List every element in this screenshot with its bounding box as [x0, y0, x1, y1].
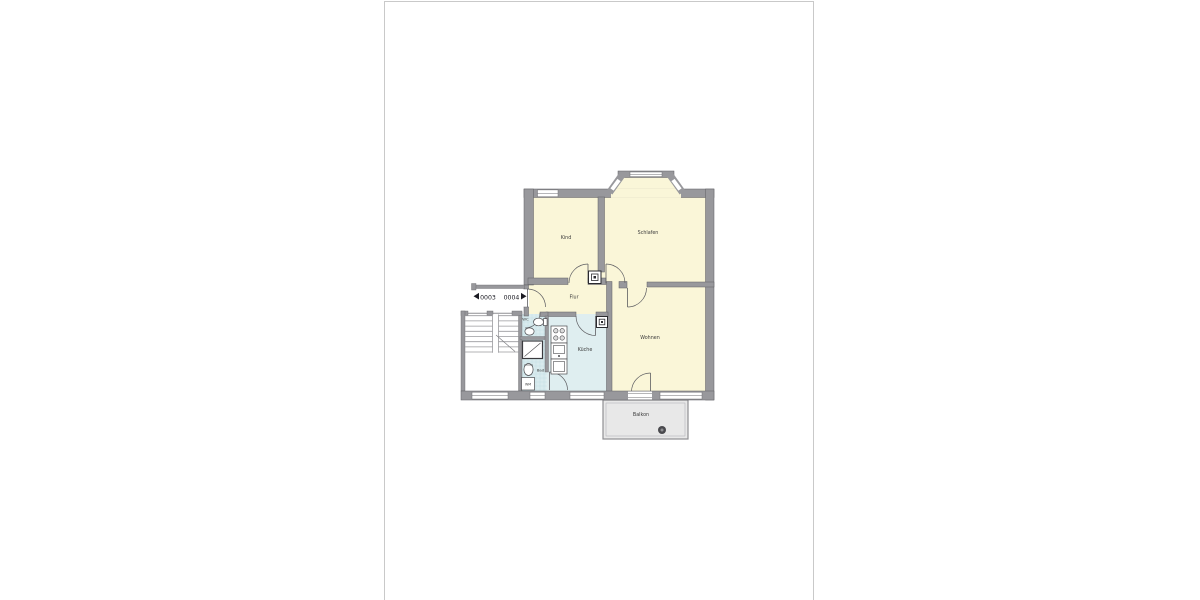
- floorplan-svg: Balkon: [0, 0, 1200, 600]
- kind-label: Kind: [561, 235, 572, 241]
- wall-right: [706, 189, 715, 400]
- balcony-door-opening: [628, 392, 652, 400]
- floor-drain-center: [661, 429, 664, 432]
- wall-corridor-cap: [472, 284, 477, 291]
- screenshot-stage: Balkon: [0, 0, 1200, 600]
- bad-label: Bad: [537, 368, 545, 373]
- entrance-opening: [524, 289, 530, 307]
- chimney-icon-2: [597, 317, 608, 328]
- wall-stair-left: [461, 311, 465, 391]
- wc-label: WC: [522, 317, 529, 322]
- kueche-label: Küche: [578, 347, 593, 353]
- wall-corridor: [472, 285, 525, 289]
- toilet-icon: [534, 318, 548, 326]
- wall-left-upper: [524, 189, 534, 285]
- bay-opening: [611, 189, 681, 198]
- wall-wohnen-cap: [619, 282, 627, 289]
- kitchen-counter: [551, 326, 567, 374]
- wall-kueche-wohnen: [607, 282, 613, 392]
- stove-icon: [551, 326, 567, 343]
- bad-sink-icon: [524, 364, 533, 376]
- balcony: Balkon: [603, 400, 688, 439]
- wohnen-label: Wohnen: [640, 335, 659, 341]
- wc-sink-icon: [525, 328, 534, 335]
- kind-window: [538, 190, 559, 197]
- wall-wohnen-top: [647, 282, 714, 287]
- wall-kueche-top-b: [596, 312, 608, 317]
- wall-wc-bad: [520, 337, 546, 340]
- wall-stair-top-c: [512, 311, 522, 316]
- wall-kind-schlafen: [598, 197, 605, 272]
- wall-flur-kind-a: [528, 278, 568, 285]
- shower-icon: [523, 341, 543, 359]
- kitchen-sink-icon: [551, 343, 567, 359]
- kitchen-unit-icon: [551, 359, 567, 374]
- flur-label: Flur: [569, 295, 578, 301]
- unit-left-label: 0003: [480, 294, 496, 301]
- unit-right-label: 0004: [504, 294, 520, 301]
- wm-label: WM: [525, 383, 531, 387]
- balcony-slab: [603, 400, 688, 439]
- balkon-label: Balkon: [633, 412, 649, 418]
- stair-stringer-gap: [493, 315, 499, 353]
- schlafen-label: Schlafen: [638, 230, 659, 236]
- bottom-windows: [472, 392, 702, 400]
- wall-kueche-top-a: [546, 312, 576, 317]
- chimney-icon: [589, 271, 602, 284]
